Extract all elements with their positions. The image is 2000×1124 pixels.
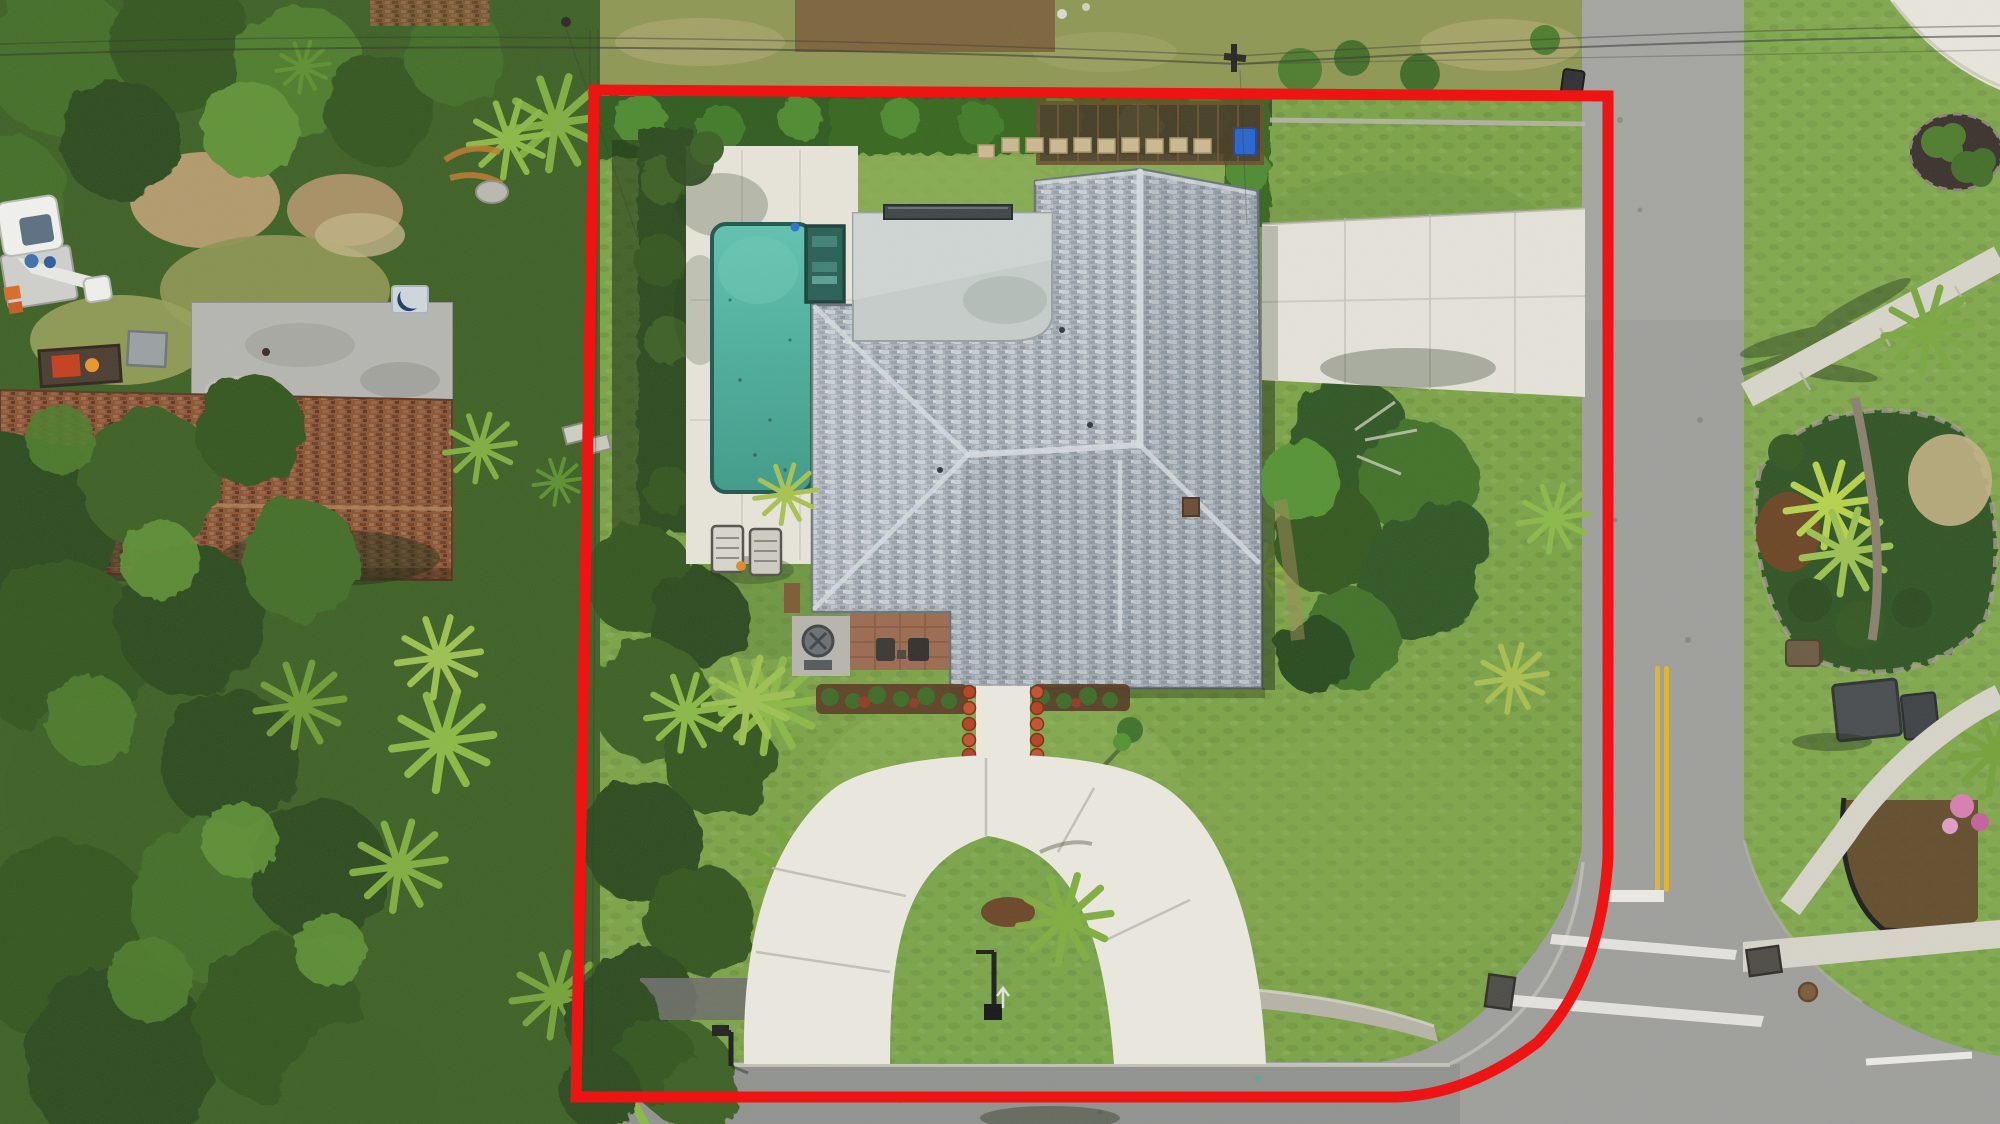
aerial-photo (0, 0, 2000, 1124)
photo-grain (0, 0, 2000, 1124)
aerial-photo-frame (0, 0, 2000, 1124)
